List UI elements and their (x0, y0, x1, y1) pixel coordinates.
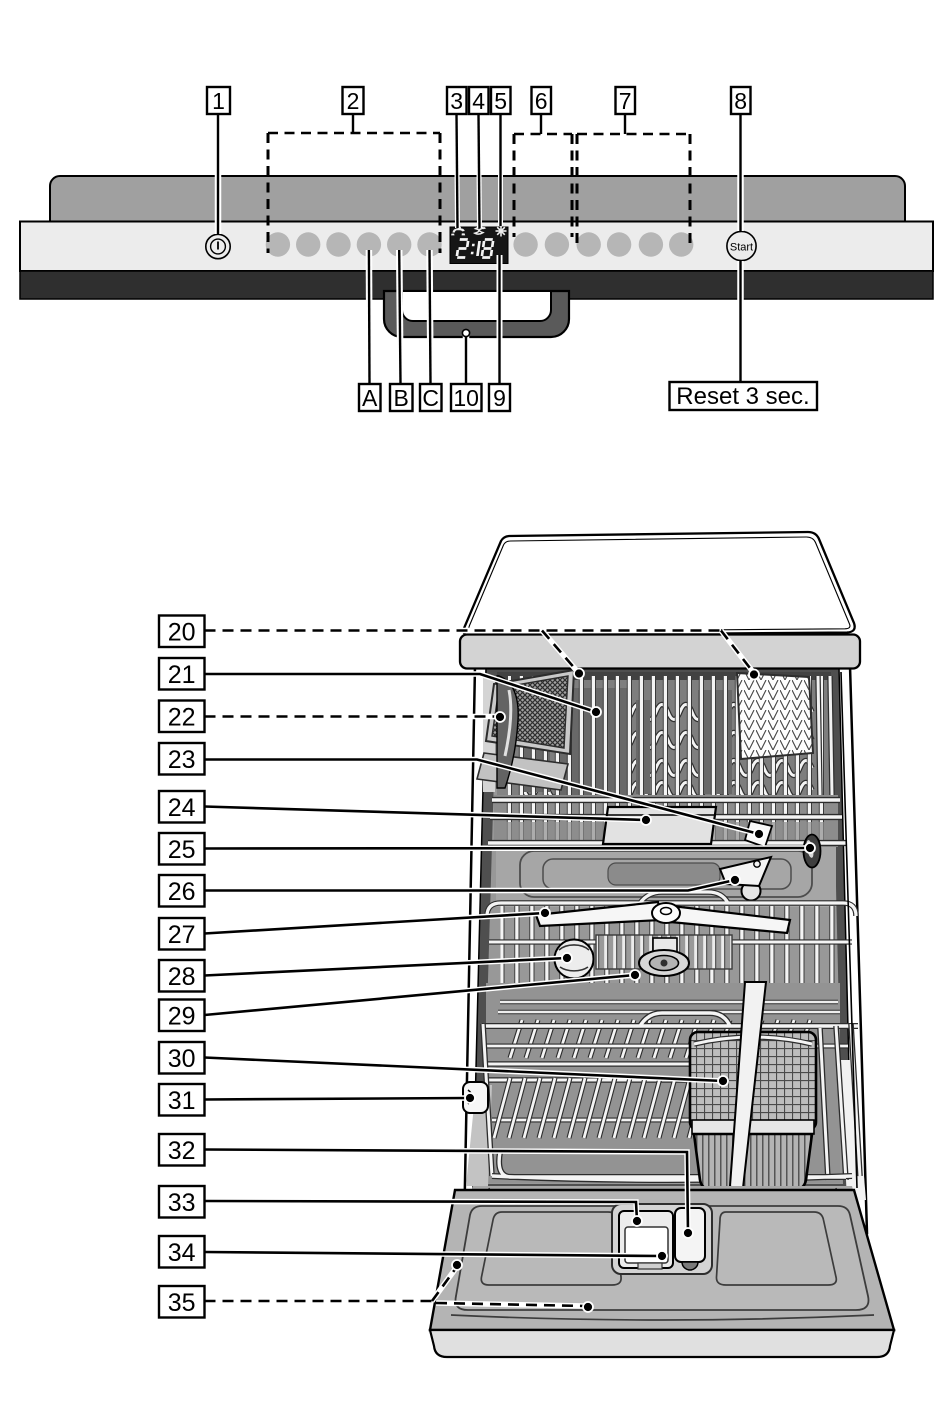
svg-text:7: 7 (619, 88, 632, 114)
svg-text:B: B (394, 385, 409, 411)
svg-text:29: 29 (168, 1003, 196, 1031)
svg-text:35: 35 (168, 1289, 196, 1317)
svg-text:A: A (362, 385, 378, 411)
svg-text:20: 20 (168, 619, 196, 647)
svg-text:32: 32 (168, 1137, 196, 1165)
svg-text:33: 33 (168, 1189, 196, 1217)
svg-text:22: 22 (168, 704, 196, 732)
svg-text:8: 8 (734, 88, 747, 114)
svg-text:25: 25 (168, 836, 196, 864)
svg-text:Reset 3 sec.: Reset 3 sec. (676, 383, 809, 410)
svg-text:34: 34 (168, 1239, 196, 1267)
svg-text:3: 3 (450, 88, 463, 114)
svg-text:31: 31 (168, 1087, 196, 1115)
svg-text:C: C (422, 385, 439, 411)
svg-text:27: 27 (168, 921, 196, 949)
svg-text:28: 28 (168, 963, 196, 991)
svg-text:1: 1 (212, 88, 225, 114)
svg-text:Start: Start (730, 242, 753, 254)
svg-text:5: 5 (494, 88, 507, 114)
svg-text:9: 9 (493, 385, 506, 411)
svg-text:10: 10 (453, 385, 479, 411)
svg-text:4: 4 (472, 88, 485, 114)
svg-text:2: 2 (347, 88, 360, 114)
svg-text:24: 24 (168, 794, 196, 822)
svg-text:26: 26 (168, 878, 196, 906)
svg-text:30: 30 (168, 1045, 196, 1073)
svg-text:21: 21 (168, 661, 196, 689)
svg-text:23: 23 (168, 746, 196, 774)
svg-text:6: 6 (535, 88, 548, 114)
